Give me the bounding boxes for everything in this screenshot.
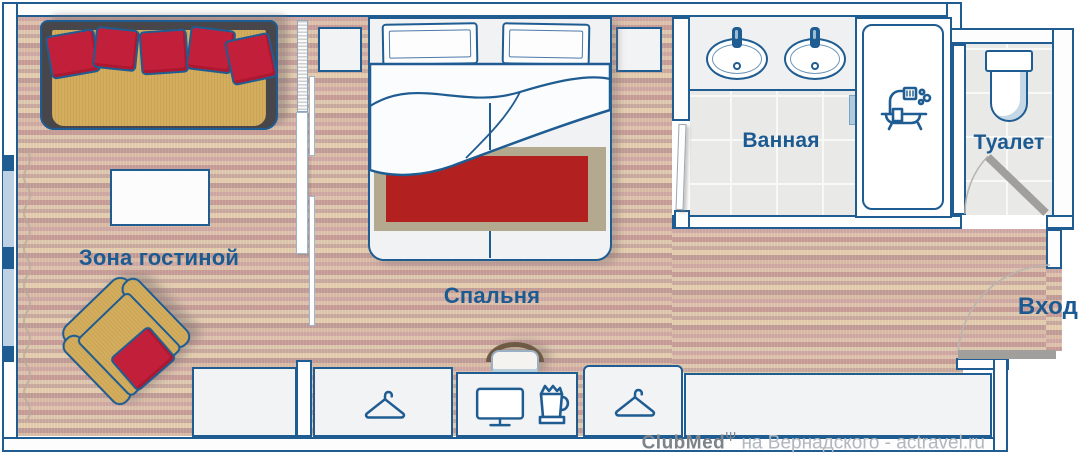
label-living: Зона гостиной [79, 245, 239, 271]
watermark-brand: ClubMed [642, 432, 726, 453]
watermark: ClubMedΨ на Вернадского - actravel.ru [642, 429, 985, 451]
sliding-partition-panel [296, 112, 308, 254]
label-toilet: Туалет [973, 131, 1044, 155]
closet [192, 367, 297, 437]
wardrobe-left [313, 367, 453, 437]
radiator-grille [297, 20, 308, 112]
toilet-icon [985, 50, 1033, 122]
wall-bathroom-door-cap [674, 210, 690, 229]
entry-bench [684, 373, 992, 437]
sink-drain [811, 62, 819, 70]
shower-cabin [855, 17, 952, 218]
hallway-floor-lower [672, 351, 963, 373]
wardrobe-right [583, 365, 683, 437]
bed-runner [386, 156, 588, 222]
toilet-bowl [990, 70, 1028, 122]
wall-toilet-bottom-stub [1046, 215, 1074, 229]
window-frame-mid [3, 247, 14, 269]
wall-toilet-left [952, 44, 966, 215]
monitor-icon [475, 387, 525, 427]
sink-drain [733, 62, 741, 70]
bathroom-door-leaf [676, 124, 687, 210]
floor-plan: Зона гостиной Спальня Ванная Туалет Вход… [0, 0, 1080, 455]
watermark-text: на Вернадского - actravel.ru [741, 432, 985, 453]
faucet-icon [732, 27, 742, 48]
toilet-tank [985, 50, 1033, 72]
bed-pillow-right [502, 22, 591, 66]
nightstand-left [318, 27, 362, 72]
desk-chair [486, 342, 544, 376]
sliding-partition-rail-upper [309, 76, 315, 156]
wall-top [2, 2, 958, 17]
label-entrance: Вход [1018, 293, 1078, 321]
hanger-icon [361, 387, 409, 421]
coffee-table [110, 169, 210, 226]
sofa-pillow [224, 32, 279, 87]
sliding-partition-rail-lower [309, 196, 315, 326]
wall-hall-right [1046, 229, 1062, 269]
wall-bedroom-bathroom [672, 17, 690, 121]
faucet-icon [810, 27, 820, 48]
hallway-floor [672, 229, 1046, 351]
wall-right-upper [1052, 28, 1074, 230]
window-frame-bottom [3, 346, 14, 362]
kettle-icon [534, 382, 572, 430]
bathtub-shower-icon [877, 85, 933, 135]
wall-bottomright [993, 358, 1008, 452]
watermark-trident-icon: Ψ [725, 429, 736, 444]
wall-closet-partition [296, 360, 312, 437]
desk [456, 372, 578, 437]
label-bedroom: Спальня [444, 283, 540, 309]
desk-chair-seat [491, 350, 539, 374]
sofa-pillow [139, 28, 190, 75]
hanger-icon [611, 385, 659, 419]
nightstand-right [616, 27, 662, 72]
bathroom-floor [690, 91, 855, 215]
window-frame-top [3, 155, 14, 171]
sofa-pillow [92, 26, 140, 72]
label-bathroom: Ванная [742, 129, 819, 153]
bed-pillow-left [382, 22, 479, 66]
